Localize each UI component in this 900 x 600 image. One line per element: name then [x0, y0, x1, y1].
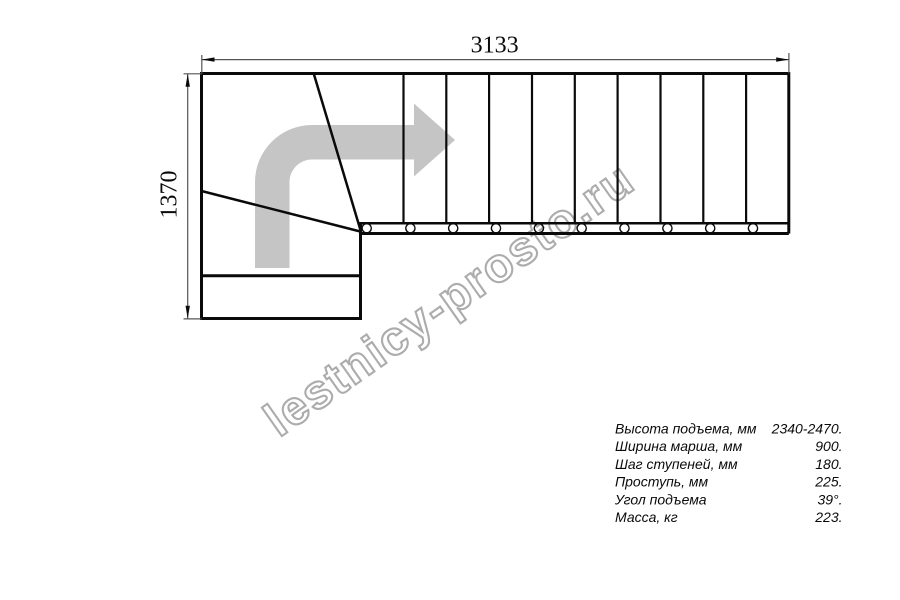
- svg-text:180.: 180.: [815, 456, 842, 472]
- svg-text:Шаг ступеней, мм: Шаг ступеней, мм: [615, 456, 738, 472]
- svg-text:Масса, кг: Масса, кг: [615, 509, 678, 525]
- svg-text:39°.: 39°.: [817, 491, 842, 507]
- svg-text:225.: 225.: [814, 474, 842, 490]
- svg-text:223.: 223.: [814, 509, 842, 525]
- svg-text:1370: 1370: [157, 171, 183, 219]
- svg-text:Ширина марша, мм: Ширина марша, мм: [615, 438, 743, 454]
- svg-text:Проступь, мм: Проступь, мм: [615, 474, 709, 490]
- svg-text:Высота подъема, мм: Высота подъема, мм: [615, 421, 757, 437]
- svg-text:2340-2470.: 2340-2470.: [771, 421, 843, 437]
- svg-text:Угол подъема: Угол подъема: [614, 491, 707, 507]
- svg-text:900.: 900.: [815, 438, 842, 454]
- svg-text:lestnicy-prosto.ru: lestnicy-prosto.ru: [255, 153, 644, 448]
- svg-text:3133: 3133: [471, 33, 519, 59]
